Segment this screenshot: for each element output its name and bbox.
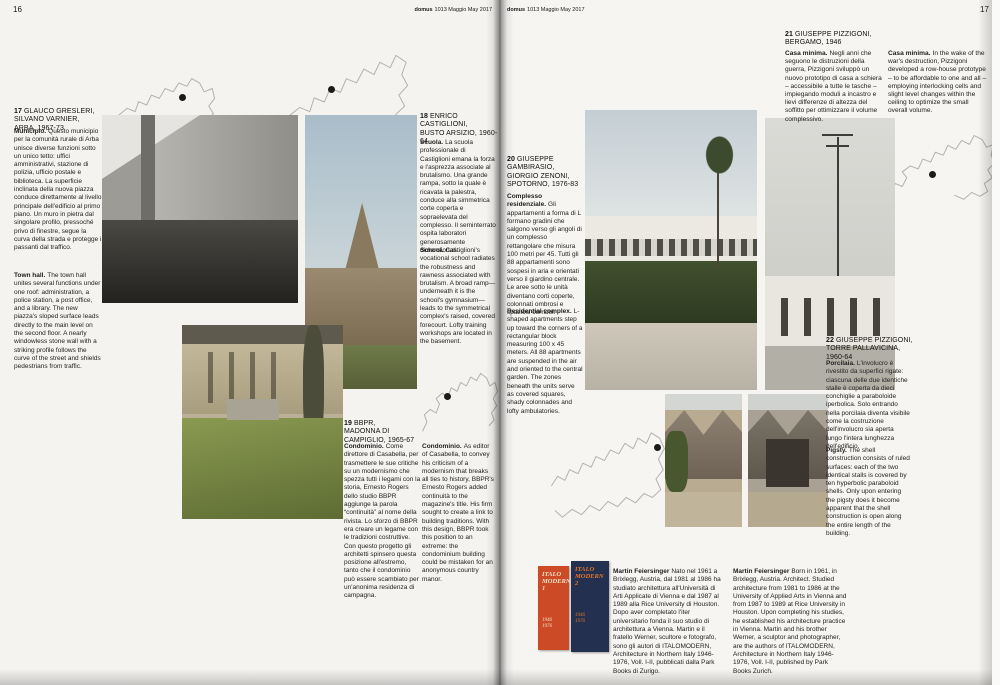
header-right: domus1013 Maggio May 2017 xyxy=(507,7,585,13)
entry-21-text-it: Casa minima.Negli anni che seguono le di… xyxy=(785,50,884,124)
author-bio-en: Martin FeiersingerBorn in 1961, in Brixl… xyxy=(733,568,847,676)
street-lamp-arms xyxy=(826,145,849,147)
photo-layer xyxy=(766,439,809,487)
entry-20-text-en: Residential complex.L-shaped apartments … xyxy=(507,308,583,416)
entry-number: 19 xyxy=(344,420,352,427)
author-bio-it: Martin FeiersingerNato nel 1961 a Brixle… xyxy=(613,568,725,676)
header-brand: domus xyxy=(414,7,432,13)
pigsty-photo-2 xyxy=(748,394,828,527)
entry-number: 18 xyxy=(420,113,428,120)
photo-layer xyxy=(182,418,343,519)
entry-22-text-it: Porcilaia.L'involucro è rivestito da sup… xyxy=(826,360,910,451)
stone-ramp xyxy=(227,399,279,420)
photo-layer xyxy=(665,492,742,527)
entry-title: BBPR, MADONNA DI CAMPIGLIO, 1965-67 xyxy=(344,420,414,444)
location-dot-spotorno xyxy=(654,444,661,451)
book-title: ITALO MODERN 2 xyxy=(575,566,606,587)
entry-22-heading: 22GIUSEPPE PIZZIGONI, TORRE PALLAVICINA,… xyxy=(826,328,920,362)
entry-number: 21 xyxy=(785,31,793,38)
entry-title: GIUSEPPE PIZZIGONI, TORRE PALLAVICINA, 1… xyxy=(826,337,913,361)
entry-20-heading: 20GIUSEPPE GAMBIRASIO, GIORGIO ZENONI, S… xyxy=(507,147,585,190)
photo-layer xyxy=(102,220,298,303)
photo-layer xyxy=(748,394,828,410)
book-cover-italomodern-2: ITALO MODERN 2 1946 1976 xyxy=(571,561,609,652)
entry-21-heading: 21GIUSEPPE PIZZIGONI, BERGAMO, 1946 xyxy=(785,22,910,48)
location-dot-busto-arsizio xyxy=(328,86,335,93)
entry-number: 22 xyxy=(826,337,834,344)
page-gutter-fold xyxy=(486,0,514,685)
campiglio-condominio-photo xyxy=(182,325,343,519)
entry-19-text-it: Condominio.Come direttore di Casabella, … xyxy=(344,443,421,601)
entry-17-text-en: Town hall.The town hall unites several f… xyxy=(14,272,102,372)
entry-18-text-it: Scuola.La scuola professionale di Castig… xyxy=(420,139,496,255)
entry-22-text-en: Pigsty.The shell construction consists o… xyxy=(826,447,910,538)
photo-layer xyxy=(665,431,688,492)
entry-17-text-it: Municipio.Questo municipio per la comuni… xyxy=(14,128,102,252)
entry-number: 17 xyxy=(14,108,22,115)
header-left: domus1013 Maggio May 2017 xyxy=(392,7,492,13)
photo-layer xyxy=(192,352,289,402)
location-dot-bergamo xyxy=(929,171,936,178)
palm-trunk xyxy=(717,172,719,267)
header-issue: 1013 Maggio May 2017 xyxy=(435,7,492,13)
entry-title: GIUSEPPE GAMBIRASIO, GIORGIO ZENONI, SPO… xyxy=(507,156,578,189)
page-number-left: 16 xyxy=(13,5,22,14)
entry-20-text-it: Complesso residenziale.Gli appartamenti … xyxy=(507,193,583,317)
location-dot-campiglio xyxy=(444,393,451,400)
entry-18-text-en: School.Castiglioni's vocational school r… xyxy=(420,247,496,347)
photo-layer xyxy=(585,323,757,390)
photo-layer xyxy=(748,492,828,527)
location-dot-arba xyxy=(179,94,186,101)
photo-layer xyxy=(665,394,742,410)
arba-town-hall-photo xyxy=(102,115,298,303)
page-bottom-shadow xyxy=(0,669,1000,685)
header-issue: 1013 Maggio May 2017 xyxy=(527,7,584,13)
location-map-spotorno xyxy=(548,413,668,545)
entry-21-text-en: Casa minima.In the wake of the war's des… xyxy=(888,50,987,116)
street-lamp-arms xyxy=(822,134,853,136)
magazine-spread: 16 domus1013 Maggio May 2017 domus1013 M… xyxy=(0,0,1000,685)
entry-19-heading: 19BBPR, MADONNA DI CAMPIGLIO, 1965-67 xyxy=(344,411,426,445)
page-right-shadow xyxy=(978,0,992,685)
pigsty-photo-1 xyxy=(665,394,742,527)
book-cover-italomodern-1: ITALO MODERN 1 1946 1976 xyxy=(538,566,569,650)
photo-layer xyxy=(585,261,757,323)
book-title: ITALO MODERN 1 xyxy=(542,571,566,592)
spotorno-complex-photo xyxy=(585,110,757,390)
photo-layer xyxy=(141,115,155,224)
entry-title: GIUSEPPE PIZZIGONI, BERGAMO, 1946 xyxy=(785,31,872,47)
entry-19-text-en: Condominio.As editor of Casabella, to co… xyxy=(422,443,496,584)
photo-layer xyxy=(344,203,380,274)
book-years: 1946 1976 xyxy=(575,613,606,625)
photo-layer xyxy=(585,239,757,256)
book-years: 1946 1976 xyxy=(542,618,566,630)
page-edge-paper xyxy=(992,0,1000,685)
